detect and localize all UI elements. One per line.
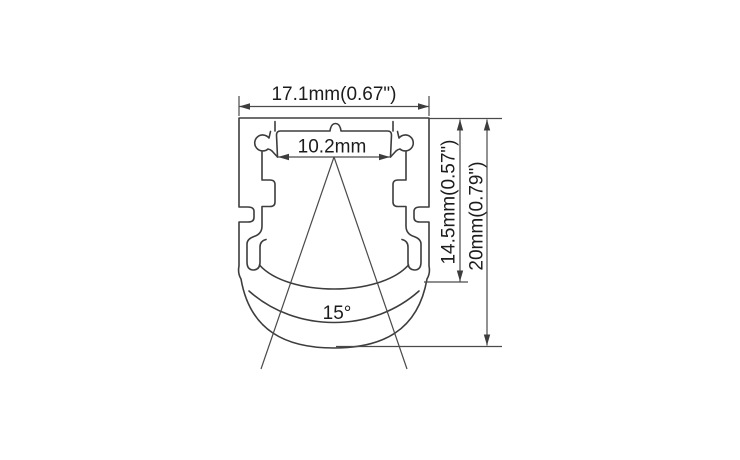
arrow-up-icon: [457, 120, 463, 131]
profile-cross-section-drawing: 17.1mm(0.67") 10.2mm 14.5mm(0.57") 20mm(…: [0, 0, 740, 460]
arrow-right-icon: [379, 154, 390, 160]
inner-walls: [247, 152, 421, 270]
hook-left: [255, 132, 278, 158]
dimension-slot-width: 10.2mm: [278, 137, 390, 161]
dimension-inner-height: 14.5mm(0.57"): [424, 120, 468, 283]
arrow-left-icon: [278, 154, 289, 160]
overall-width-label: 17.1mm(0.67"): [271, 84, 396, 105]
inner-wall-right: [393, 152, 421, 270]
inner-height-label: 14.5mm(0.57"): [439, 139, 460, 264]
technical-drawing-page: 17.1mm(0.67") 10.2mm 14.5mm(0.57") 20mm(…: [0, 0, 740, 460]
arrow-right-icon: [418, 103, 429, 109]
hook-right: [391, 132, 414, 158]
inner-wall-left: [247, 152, 275, 270]
beam-angle-lines: [261, 157, 407, 369]
beam-angle-annotation: 15°: [323, 303, 352, 324]
overall-height-label: 20mm(0.79"): [467, 161, 488, 270]
arrow-down-icon: [457, 271, 463, 282]
arrow-left-icon: [239, 103, 250, 109]
arrow-down-icon: [484, 335, 490, 346]
beam-line-left: [261, 157, 334, 369]
lens-inner-arc: [260, 265, 409, 289]
dimension-overall-width: 17.1mm(0.67"): [239, 84, 429, 116]
beam-angle-label: 15°: [323, 303, 352, 324]
arrow-up-icon: [484, 120, 490, 131]
beam-line-right: [334, 157, 407, 369]
slot-width-label: 10.2mm: [298, 137, 367, 158]
